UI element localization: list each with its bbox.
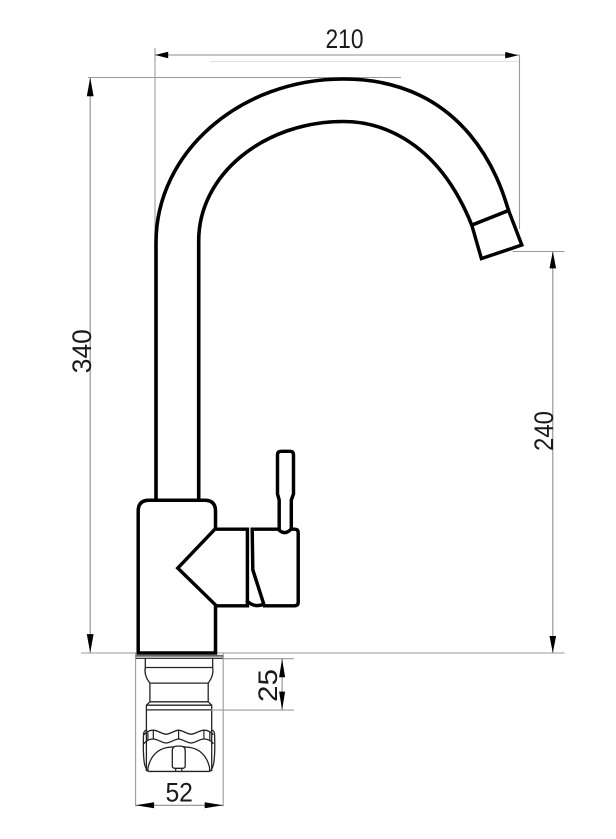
svg-text:25: 25	[253, 669, 283, 702]
svg-text:210: 210	[326, 24, 364, 54]
svg-text:340: 340	[67, 329, 97, 373]
svg-text:240: 240	[529, 411, 559, 451]
svg-text:52: 52	[165, 778, 193, 808]
